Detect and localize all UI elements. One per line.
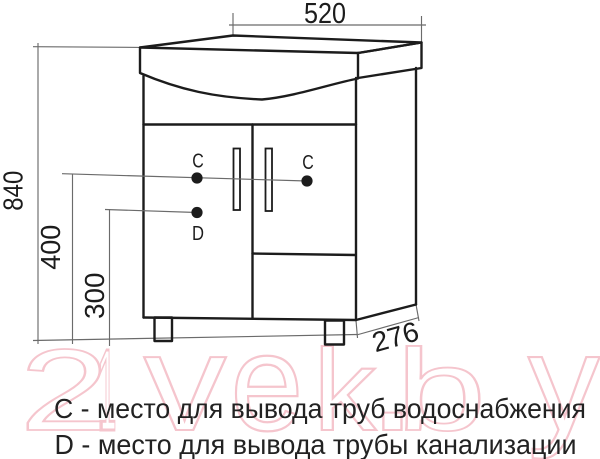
svg-text:840: 840 xyxy=(0,171,29,211)
svg-text:400: 400 xyxy=(35,225,66,270)
svg-text:C - место для вывода труб водо: C - место для вывода труб водоснабжения xyxy=(54,393,586,424)
svg-text:520: 520 xyxy=(304,0,346,30)
svg-text:D - место для вывода трубы кан: D - место для вывода трубы канализации xyxy=(55,429,577,459)
svg-text:D: D xyxy=(192,223,204,245)
svg-text:C: C xyxy=(192,151,204,173)
svg-text:300: 300 xyxy=(79,273,110,320)
svg-text:C: C xyxy=(302,152,314,174)
